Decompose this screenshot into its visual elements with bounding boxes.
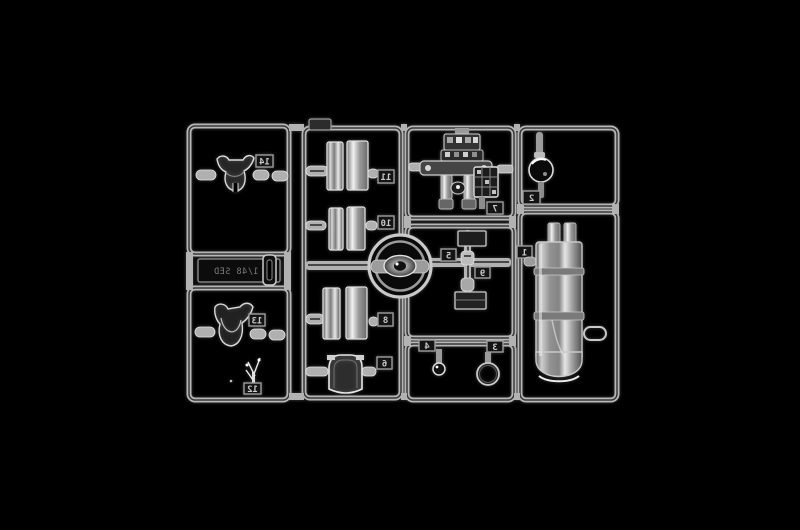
part-tag-13: 13 xyxy=(249,314,265,327)
part-number-11: 11 xyxy=(381,173,392,183)
part-capsule-upper xyxy=(461,251,474,265)
part-tag-4: 4 xyxy=(419,340,435,352)
sprue: 14 1/48 SED 13 xyxy=(186,119,619,400)
sprue-photo: 14 1/48 SED 13 xyxy=(0,0,800,530)
part-number-13: 13 xyxy=(252,317,263,327)
part-tag-9: 9 xyxy=(475,267,490,279)
part-clear-disc xyxy=(477,352,499,385)
part-number-3: 3 xyxy=(492,343,497,353)
part-tag-6: 6 xyxy=(377,357,392,370)
part-number-8: 8 xyxy=(383,316,388,326)
injection-tab xyxy=(309,119,331,130)
part-windscreen xyxy=(306,355,376,393)
part-pane-lower xyxy=(455,292,486,309)
part-number-5: 5 xyxy=(446,252,451,262)
part-canopy-lower xyxy=(195,303,285,346)
part-number-14: 14 xyxy=(259,158,270,168)
part-pair-upper xyxy=(306,141,378,190)
part-tag-12: 12 xyxy=(244,383,261,395)
plate-text: 1/48 SED xyxy=(214,267,259,277)
part-number-12: 12 xyxy=(247,385,258,395)
part-pane-upper xyxy=(458,231,486,246)
part-canopy-upper xyxy=(196,156,288,192)
part-number-10: 10 xyxy=(381,219,392,229)
part-instrument-assembly xyxy=(409,128,513,209)
part-tag-7: 7 xyxy=(487,202,503,215)
part-ring-sight xyxy=(369,235,431,297)
part-tag-10: 10 xyxy=(378,216,394,229)
cylinder-side-stub xyxy=(584,327,606,340)
part-slot-piece xyxy=(263,255,276,285)
part-tag-5: 5 xyxy=(441,249,456,262)
frame-cell-bottom-left-seam xyxy=(189,288,289,400)
frame-cell-bottom-left xyxy=(189,288,289,400)
part-tag-8: 8 xyxy=(378,313,393,326)
part-number-7: 7 xyxy=(492,205,497,215)
part-tag-14: 14 xyxy=(256,155,273,168)
part-clear-cylinder xyxy=(524,223,606,381)
part-tag-2: 2 xyxy=(523,191,540,204)
part-number-9: 9 xyxy=(480,269,485,279)
part-tag-11: 11 xyxy=(378,170,394,183)
part-light-ball xyxy=(433,349,445,375)
part-number-4: 4 xyxy=(424,342,430,352)
part-round-lens xyxy=(529,132,553,198)
part-pair-lower xyxy=(306,287,378,339)
part-capsule-lower xyxy=(461,278,474,291)
part-number-6: 6 xyxy=(382,360,387,370)
part-number-2: 2 xyxy=(529,194,534,204)
part-pair-middle xyxy=(306,207,377,250)
photo-stage: 14 1/48 SED 13 xyxy=(0,0,800,530)
part-tag-3: 3 xyxy=(487,341,503,353)
